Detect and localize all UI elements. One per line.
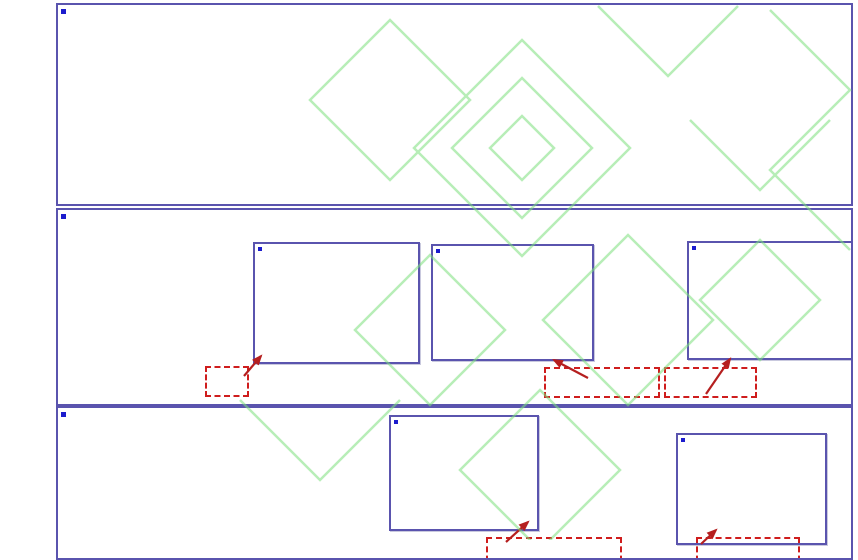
window-icon (258, 247, 262, 251)
panel-a-window (56, 3, 853, 206)
inset-chromatogram-b3 (690, 251, 850, 357)
callout-box-peaks-3-5 (486, 537, 622, 560)
callout-box-peaks-6-8 (696, 537, 800, 560)
window-icon (436, 249, 440, 253)
inset-window-c2 (676, 433, 827, 545)
inset-window-c1 (389, 415, 539, 531)
panel-a-titlebar (58, 5, 851, 16)
window-icon (692, 246, 696, 250)
panel-b-window (56, 208, 853, 406)
callout-box-peaks-1-2 (205, 366, 249, 397)
figure-root: { "colors": { "window_border": "#5a54ae"… (0, 0, 858, 540)
panel-b-titlebar (58, 210, 851, 221)
callout-box-peaks-3-5 (544, 367, 660, 398)
window-icon (681, 438, 685, 442)
inset-chromatogram-b2 (434, 254, 591, 358)
callout-box-peaks-6-8 (664, 367, 757, 398)
inset-window-b2 (431, 244, 594, 361)
inset-window-b3 (687, 241, 853, 360)
inset-chromatogram-b1 (256, 252, 417, 361)
panel-c-window (56, 406, 853, 560)
chromatogram-a (60, 16, 845, 200)
inset-chromatogram-c1 (392, 425, 536, 528)
window-icon (61, 412, 66, 417)
window-icon (61, 9, 66, 14)
window-icon (394, 420, 398, 424)
inset-chromatogram-c2 (679, 443, 824, 542)
inset-window-b1 (253, 242, 420, 364)
window-icon (61, 214, 66, 219)
